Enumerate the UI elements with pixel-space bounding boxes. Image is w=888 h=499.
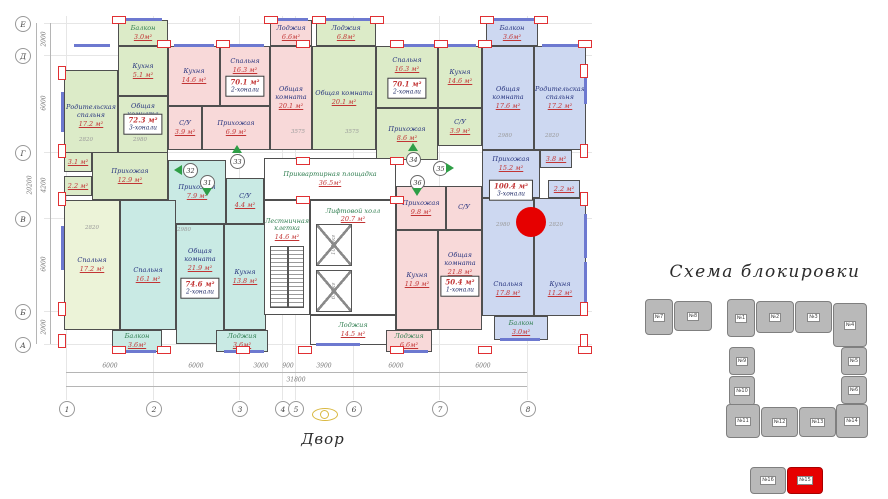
window bbox=[74, 44, 110, 47]
entrance-marker: 35 bbox=[433, 161, 448, 176]
block-№5[interactable]: №5 bbox=[841, 347, 867, 375]
window bbox=[278, 18, 308, 21]
view-direction-eye-icon bbox=[312, 408, 338, 421]
dimension-value: 2820 bbox=[545, 133, 559, 139]
room-label: Кухня11.2 м² bbox=[548, 281, 573, 297]
dimension-value: 2820 bbox=[79, 137, 93, 143]
column bbox=[298, 346, 312, 354]
room-label: 3.1 м² bbox=[68, 158, 88, 166]
axis-label: 8 bbox=[520, 401, 536, 417]
axis-label: В bbox=[15, 211, 31, 227]
block-№15[interactable]: №15 bbox=[787, 467, 823, 494]
column bbox=[112, 346, 126, 354]
room: 2.2 м² bbox=[64, 176, 92, 196]
block-№12[interactable]: №12 bbox=[761, 407, 798, 437]
room: С/У3.9 м² bbox=[438, 108, 482, 146]
window bbox=[174, 44, 214, 47]
dimension-value: 900 bbox=[282, 363, 293, 370]
direction-triangle-icon bbox=[412, 188, 422, 196]
room-label: Спальня16.1 м² bbox=[133, 267, 162, 283]
block-number-label: №9 bbox=[736, 357, 748, 366]
column bbox=[434, 40, 448, 48]
room-label: Прихожая6.9 м² bbox=[217, 120, 254, 136]
blocking-scheme-title: Схема блокировки bbox=[652, 262, 878, 282]
column bbox=[580, 144, 588, 158]
block-№4[interactable]: №4 bbox=[833, 303, 867, 347]
room-label: 3.8 м² bbox=[546, 155, 566, 163]
dimension-value: 3575 bbox=[345, 129, 359, 135]
column bbox=[390, 157, 404, 165]
block-№14[interactable]: №14 bbox=[836, 404, 868, 438]
column bbox=[390, 40, 404, 48]
dimension-value: 2980 bbox=[498, 133, 512, 139]
column bbox=[580, 302, 588, 316]
room-label: Кухня14.6 м² bbox=[448, 69, 473, 85]
dimension-value: 2000 bbox=[41, 319, 48, 334]
room-label: С/У bbox=[458, 204, 470, 212]
block-№1[interactable]: №1 bbox=[727, 299, 755, 337]
room-label: Лоджия14.5 м² bbox=[338, 322, 367, 338]
room: Прихожая6.9 м² bbox=[202, 106, 270, 150]
column bbox=[480, 16, 494, 24]
block-number-label: №10 bbox=[734, 387, 750, 396]
column bbox=[58, 144, 66, 158]
room: С/У4.4 м² bbox=[226, 178, 264, 224]
room: Приквартирная площадка36.5м² bbox=[264, 158, 396, 200]
column bbox=[58, 302, 66, 316]
room: Родительская спальня17.2 м² bbox=[64, 70, 118, 162]
dimension-value: 6000 bbox=[188, 363, 203, 370]
column bbox=[478, 346, 492, 354]
axis-label: 2 bbox=[146, 401, 162, 417]
column bbox=[390, 346, 404, 354]
block-№11[interactable]: №11 bbox=[726, 404, 760, 438]
room-label: Общая комната21.9 м² bbox=[177, 248, 223, 272]
block-№16[interactable]: №16 bbox=[750, 467, 786, 494]
room-label: 2.2 м² bbox=[554, 185, 574, 193]
block-number-label: №8 bbox=[687, 312, 699, 321]
axis-label: 7 bbox=[432, 401, 448, 417]
dimension-line bbox=[66, 372, 527, 373]
floor-plan-page: 1000кг 630кг Двор Родительская спальня17… bbox=[0, 0, 888, 499]
window bbox=[492, 18, 534, 21]
axis-label: Г bbox=[15, 145, 31, 161]
elevator-shaft: 1000кг bbox=[316, 224, 352, 266]
dimension-value: 6000 bbox=[388, 363, 403, 370]
room-label: Лоджия6.6м² bbox=[276, 25, 305, 41]
room: Кухня11.9 м² bbox=[396, 230, 438, 330]
axis-label: 1 bbox=[59, 401, 75, 417]
dimension-value: 3000 bbox=[253, 363, 268, 370]
room: Кухня5.1 м² bbox=[118, 46, 168, 96]
column bbox=[296, 157, 310, 165]
room: 2.2 м² bbox=[548, 180, 580, 198]
entrance-marker: 31 bbox=[200, 175, 215, 190]
direction-triangle-icon bbox=[174, 165, 182, 175]
staircase bbox=[270, 246, 304, 308]
room-label: Спальня16.3 м² bbox=[230, 58, 259, 74]
room-label: Прихожая12.9 м² bbox=[111, 168, 148, 184]
dimension-value: 6000 bbox=[102, 363, 117, 370]
dimension-value: 2980 bbox=[496, 222, 510, 228]
column bbox=[58, 192, 66, 206]
window bbox=[542, 44, 580, 47]
column bbox=[58, 66, 66, 80]
block-number-label: №5 bbox=[848, 357, 860, 366]
room-label: Общая комната17.6 м² bbox=[483, 86, 533, 110]
column bbox=[216, 40, 230, 48]
dimension-line bbox=[36, 23, 37, 344]
elevator-shaft: 630кг bbox=[316, 270, 352, 312]
block-number-label: №14 bbox=[844, 417, 860, 426]
block-number-label: №15 bbox=[797, 476, 813, 485]
column bbox=[534, 16, 548, 24]
room: Спальня17.2 м² bbox=[64, 200, 120, 330]
direction-triangle-icon bbox=[202, 188, 212, 196]
block-number-label: №11 bbox=[735, 417, 751, 426]
room-label: Прихожая8.6 м² bbox=[388, 126, 425, 142]
block-number-label: №7 bbox=[653, 313, 665, 322]
room-label: Балкон3.6м² bbox=[125, 333, 150, 349]
block-№8[interactable]: №8 bbox=[674, 301, 712, 331]
entrance-marker: 33 bbox=[230, 154, 245, 169]
dimension-value: 2000 bbox=[41, 31, 48, 46]
axis-label: 3 bbox=[232, 401, 248, 417]
dimension-total: 31800 bbox=[286, 377, 305, 384]
room-label: Спальня17.2 м² bbox=[77, 257, 106, 273]
axis-label: Е bbox=[15, 16, 31, 32]
room-label: Кухня5.1 м² bbox=[132, 63, 153, 79]
block-№9[interactable]: №9 bbox=[729, 347, 755, 375]
dimension-value: 2820 bbox=[549, 222, 563, 228]
room-label: Родительская спальня17.2 м² bbox=[65, 104, 117, 128]
direction-triangle-icon bbox=[446, 163, 454, 173]
window bbox=[61, 92, 64, 132]
dimension-value: 2980 bbox=[133, 137, 147, 143]
block-number-label: №1 bbox=[735, 314, 747, 323]
column bbox=[478, 40, 492, 48]
room: Кухня13.8 м² bbox=[224, 224, 266, 330]
elevator-capacity-label: 630кг bbox=[314, 274, 354, 308]
dimension-value: 6000 bbox=[41, 256, 48, 271]
column bbox=[264, 16, 278, 24]
dimension-line bbox=[66, 386, 527, 387]
block-number-label: №4 bbox=[844, 321, 856, 330]
block-number-label: №6 bbox=[848, 386, 860, 395]
room: Лоджия14.5 м² bbox=[310, 315, 396, 345]
apartment-badge: 72.3 м²3-хонали bbox=[123, 114, 162, 135]
column bbox=[578, 346, 592, 354]
block-number-label: №12 bbox=[772, 418, 788, 427]
room-label: Общая комната20.1 м² bbox=[271, 86, 311, 110]
axis-label: Б bbox=[15, 304, 31, 320]
dimension-value: 3900 bbox=[316, 363, 331, 370]
room: Прихожая12.9 м² bbox=[92, 152, 168, 200]
room-label: Кухня14.6 м² bbox=[182, 68, 207, 84]
column bbox=[296, 196, 310, 204]
dimension-value: 6000 bbox=[41, 95, 48, 110]
dimension-value: 4200 bbox=[41, 177, 48, 192]
direction-triangle-icon bbox=[408, 143, 418, 151]
block-№6[interactable]: №6 bbox=[841, 376, 867, 404]
column bbox=[312, 16, 326, 24]
dimension-line bbox=[50, 23, 51, 344]
axis-label: 5 bbox=[288, 401, 304, 417]
room: Балкон3.0м² bbox=[494, 316, 548, 340]
room-label: С/У3.9 м² bbox=[175, 120, 195, 136]
dimension-value: 2980 bbox=[177, 227, 191, 233]
courtyard-label: Двор bbox=[278, 430, 368, 448]
block-number-label: №2 bbox=[769, 313, 781, 322]
room-label: Балкон3.0м² bbox=[509, 320, 534, 336]
room-label: Лоджия6.8м² bbox=[331, 25, 360, 41]
room-label: Балкон3.6м² bbox=[500, 25, 525, 41]
window bbox=[61, 226, 64, 270]
column bbox=[157, 40, 171, 48]
room-label: Общая комната21.8 м² bbox=[439, 252, 481, 276]
column bbox=[236, 346, 250, 354]
apartment-badge: 70.1 м²2-хонали bbox=[387, 78, 426, 99]
room-label: Родительская спальня17.2 м² bbox=[535, 86, 585, 110]
axis-label: Д bbox=[15, 48, 31, 64]
column bbox=[370, 16, 384, 24]
room: С/У3.9 м² bbox=[168, 106, 202, 150]
window bbox=[500, 338, 540, 341]
room-label: Прихожая9.8 м² bbox=[402, 200, 439, 216]
block-№2[interactable]: №2 bbox=[756, 301, 794, 333]
dimension-value: 2820 bbox=[85, 225, 99, 231]
column bbox=[157, 346, 171, 354]
column bbox=[112, 16, 126, 24]
apartment-badge: 70.1 м²2-хонали bbox=[225, 76, 264, 97]
elevator-capacity-label: 1000кг bbox=[314, 228, 354, 262]
room-label: Лестничная клетка14.6 м² bbox=[265, 218, 309, 242]
room-label: Лифтовой холл20.7 м² bbox=[326, 208, 381, 224]
entrance-marker: 36 bbox=[410, 175, 425, 190]
dimension-total: 20200 bbox=[27, 175, 34, 194]
room: Родительская спальня17.2 м² bbox=[534, 46, 586, 150]
entrance-marker: 32 bbox=[183, 163, 198, 178]
column bbox=[580, 192, 588, 206]
block-number-label: №3 bbox=[807, 313, 819, 322]
room-label: С/У3.9 м² bbox=[450, 119, 470, 135]
apartment-badge: 100.4 м²3-хонали bbox=[489, 180, 533, 201]
axis-label: 6 bbox=[346, 401, 362, 417]
window bbox=[126, 18, 162, 21]
room: 3.8 м² bbox=[540, 150, 572, 168]
room: 3.1 м² bbox=[64, 152, 92, 172]
block-№13[interactable]: №13 bbox=[799, 407, 836, 437]
room: Общая комната20.1 м² bbox=[312, 46, 376, 150]
entrance-marker: 34 bbox=[406, 152, 421, 167]
room-label: Прихожая15.2 м² bbox=[492, 156, 529, 172]
room-label: Кухня11.9 м² bbox=[405, 272, 430, 288]
block-№10[interactable]: №10 bbox=[729, 376, 755, 406]
window bbox=[224, 44, 264, 47]
room-label: Спальня16.3 м² bbox=[392, 57, 421, 73]
column bbox=[580, 64, 588, 78]
room-label: С/У4.4 м² bbox=[235, 193, 255, 209]
room-label: Приквартирная площадка36.5м² bbox=[283, 171, 376, 187]
block-№7[interactable]: №7 bbox=[645, 299, 673, 335]
room-label: Балкон3.0м² bbox=[131, 25, 156, 41]
block-number-label: №13 bbox=[810, 418, 826, 427]
column bbox=[58, 334, 66, 348]
room: С/У bbox=[446, 186, 482, 230]
window bbox=[446, 44, 476, 47]
direction-triangle-icon bbox=[232, 145, 242, 153]
dimension-value: 3575 bbox=[291, 129, 305, 135]
block-№3[interactable]: №3 bbox=[795, 301, 832, 333]
room-label: Спальня17.8 м² bbox=[493, 281, 522, 297]
axis-label: А bbox=[15, 337, 31, 353]
room: Кухня14.6 м² bbox=[438, 46, 482, 108]
column bbox=[390, 196, 404, 204]
room-label: Кухня13.8 м² bbox=[233, 269, 258, 285]
window bbox=[584, 262, 587, 302]
block-number-label: №16 bbox=[760, 476, 776, 485]
window bbox=[316, 343, 360, 346]
apartment-badge: 50.4 м²1-хонали bbox=[440, 276, 479, 297]
window bbox=[322, 18, 372, 21]
room-label: Общая комната20.1 м² bbox=[315, 90, 372, 106]
window bbox=[584, 214, 587, 258]
selected-apartment-marker[interactable] bbox=[516, 207, 546, 237]
dimension-value: 6000 bbox=[475, 363, 490, 370]
column bbox=[296, 40, 310, 48]
room: Кухня14.6 м² bbox=[168, 46, 220, 106]
column bbox=[578, 40, 592, 48]
room: Спальня16.1 м² bbox=[120, 200, 176, 330]
apartment-badge: 74.6 м²2-хонали bbox=[180, 278, 219, 299]
room-label: 2.2 м² bbox=[68, 182, 88, 190]
